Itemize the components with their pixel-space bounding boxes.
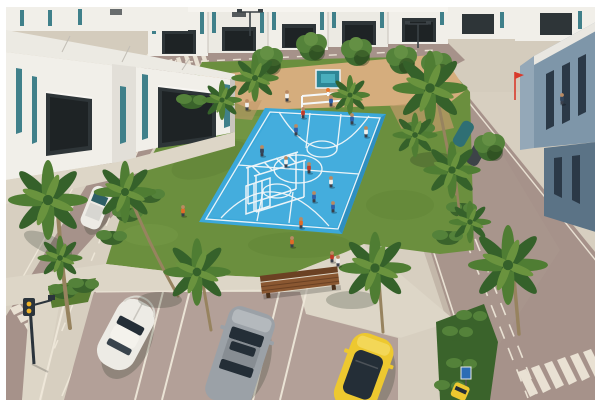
- hoop-rim: [326, 88, 330, 92]
- palm-tree: [231, 54, 279, 102]
- palm-tree: [330, 75, 370, 115]
- palm-tree: [38, 236, 83, 281]
- palm-tree: [94, 161, 157, 224]
- palm-tree: [163, 238, 231, 306]
- palm-tree: [423, 141, 481, 199]
- grass-shade-patch: [248, 232, 352, 258]
- scene-canvas: [0, 0, 600, 400]
- backboard-inner: [321, 74, 335, 83]
- palm-tree: [8, 160, 88, 240]
- palm-tree: [202, 80, 242, 120]
- palm-tree: [339, 232, 412, 305]
- palm-tree: [393, 113, 438, 158]
- grass-shade-patch: [366, 190, 434, 220]
- aerial-render: [0, 0, 600, 400]
- palm-tree: [468, 225, 548, 305]
- palm-tree: [393, 51, 468, 126]
- palm-tree: [449, 201, 492, 244]
